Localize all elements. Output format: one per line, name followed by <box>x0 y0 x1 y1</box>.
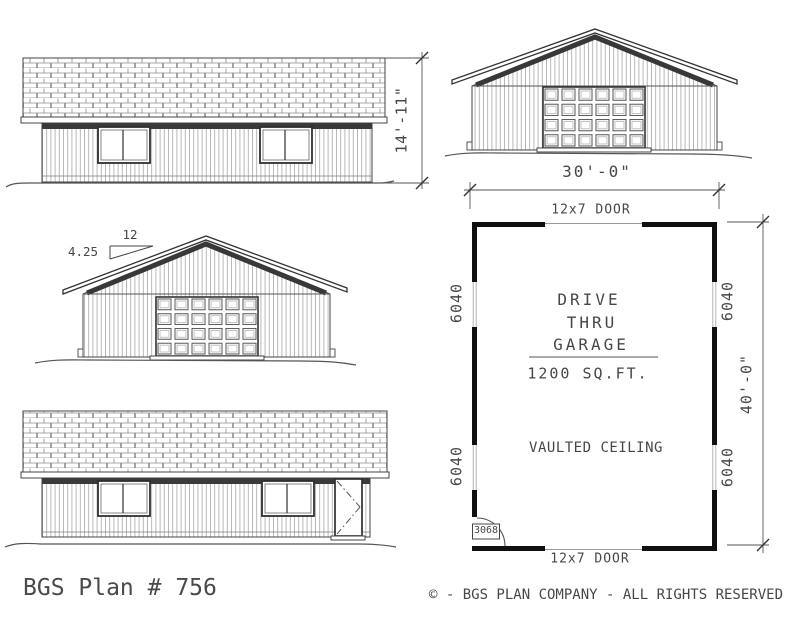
side-entry-door <box>331 479 365 540</box>
side-window-right <box>262 481 314 516</box>
plan-walls <box>472 222 717 551</box>
rear-window-left <box>98 127 150 163</box>
window-label-right-bottom: 6040 <box>721 447 736 487</box>
window-label-left-bottom: 6040 <box>450 446 465 486</box>
window-label-left-top: 6040 <box>450 283 465 323</box>
rear-window-right <box>260 127 312 163</box>
front-ground-line <box>445 153 752 158</box>
copyright-notice: © - BGS PLAN COMPANY - ALL RIGHTS RESERV… <box>429 588 783 602</box>
blueprint-canvas: 14'-11" 4.25 12 30'-0" 12x7 DOOR 12x7 DO… <box>0 0 800 618</box>
room-name-line3: GARAGE <box>553 337 629 353</box>
front-garage-door <box>537 87 651 152</box>
plan-bottom-door-label: 12x7 DOOR <box>550 553 629 566</box>
pitch-rise-label: 4.25 <box>68 246 98 259</box>
pitch-triangle <box>110 246 153 259</box>
pitch-run-label: 12 <box>122 229 137 242</box>
front-elevation-drawing <box>445 29 752 209</box>
window-label-right-top: 6040 <box>721 281 736 321</box>
floor-plan-drawing <box>472 214 769 553</box>
room-name-line2: THRU <box>567 315 618 331</box>
room-area-label: 1200 SQ.FT. <box>527 367 648 382</box>
ceiling-label: VAULTED CEILING <box>529 441 663 455</box>
room-name-line1: DRIVE <box>557 292 620 308</box>
rear-height-dim-label: 14'-11" <box>395 87 410 154</box>
plan-title: BGS Plan # 756 <box>23 577 217 600</box>
plan-depth-dim-label: 40'-0" <box>740 354 755 414</box>
left-ground-line <box>35 360 356 365</box>
left-garage-door <box>150 297 264 360</box>
side-ground-line <box>5 543 396 547</box>
front-width-dim-label: 30'-0" <box>562 164 632 180</box>
side-elevation-drawing <box>5 411 396 547</box>
side-window-left <box>98 481 150 516</box>
rear-elevation-drawing <box>6 52 429 189</box>
plan-top-door-label: 12x7 DOOR <box>551 204 630 217</box>
entry-door-tag-label: 3068 <box>474 526 498 536</box>
